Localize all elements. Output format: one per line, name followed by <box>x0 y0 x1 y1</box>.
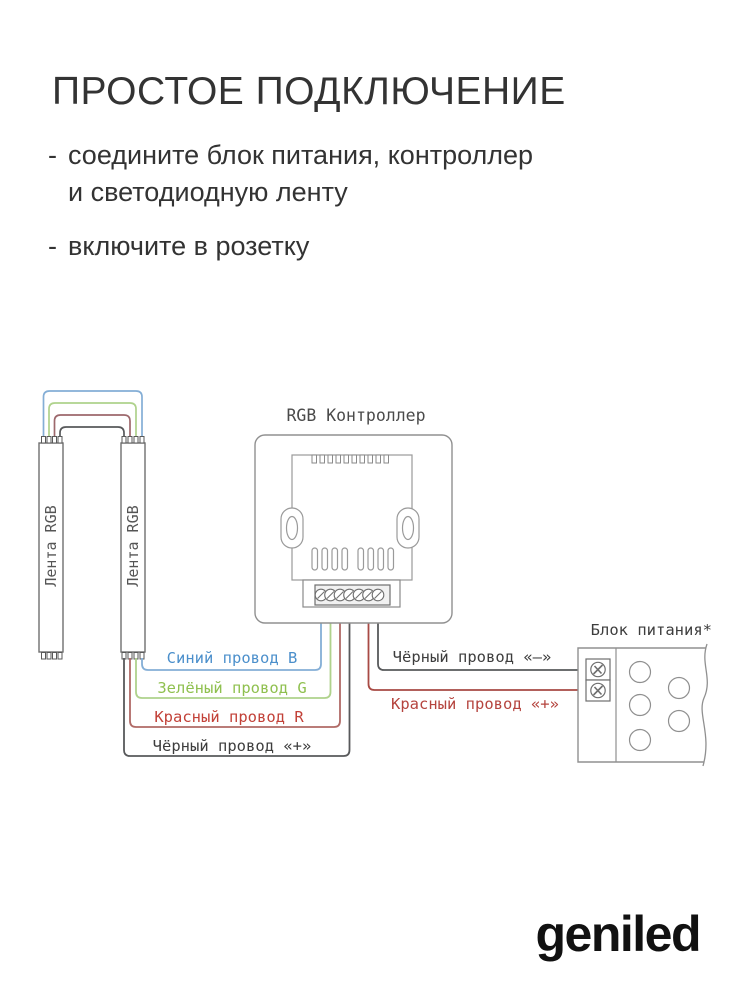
black-plus-wire-label: Чёрный провод «+» <box>153 737 312 755</box>
red-wire-label: Красный провод R <box>154 708 304 726</box>
wire-labels-right: Чёрный провод «–» Красный провод «+» <box>391 648 559 713</box>
psu-terminal-block <box>586 659 610 701</box>
wiring-diagram: Лента RGB Лента RGB RGB Контро <box>0 0 750 1000</box>
black-minus-wire-label: Чёрный провод «–» <box>393 648 552 666</box>
infographic-page: ПРОСТОЕ ПОДКЛЮЧЕНИЕ - соедините блок пит… <box>0 0 750 1000</box>
led-strip-right: Лента RGB <box>121 437 145 660</box>
red-plus-wire-label: Красный провод «+» <box>391 695 559 713</box>
controller-label: RGB Контроллер <box>286 406 425 425</box>
rgb-controller: RGB Контроллер <box>255 406 452 623</box>
strip-loop-wires <box>44 391 143 438</box>
geniled-logo: geniled <box>535 905 700 963</box>
terminal-screws <box>315 589 384 601</box>
strip-label: Лента RGB <box>42 505 60 586</box>
green-wire-top <box>49 403 136 438</box>
power-supply: Блок питания* <box>578 621 712 766</box>
power-supply-label: Блок питания* <box>591 621 712 639</box>
blue-wire-label: Синий провод B <box>167 649 298 667</box>
green-wire-label: Зелёный провод G <box>157 679 306 697</box>
wire-labels-left: Синий провод B Зелёный провод G Красный … <box>153 649 312 755</box>
led-strip-left: Лента RGB <box>39 437 63 660</box>
strip-label: Лента RGB <box>124 505 142 586</box>
controller-terminal-block <box>303 580 400 607</box>
black-wire-top <box>60 427 124 438</box>
